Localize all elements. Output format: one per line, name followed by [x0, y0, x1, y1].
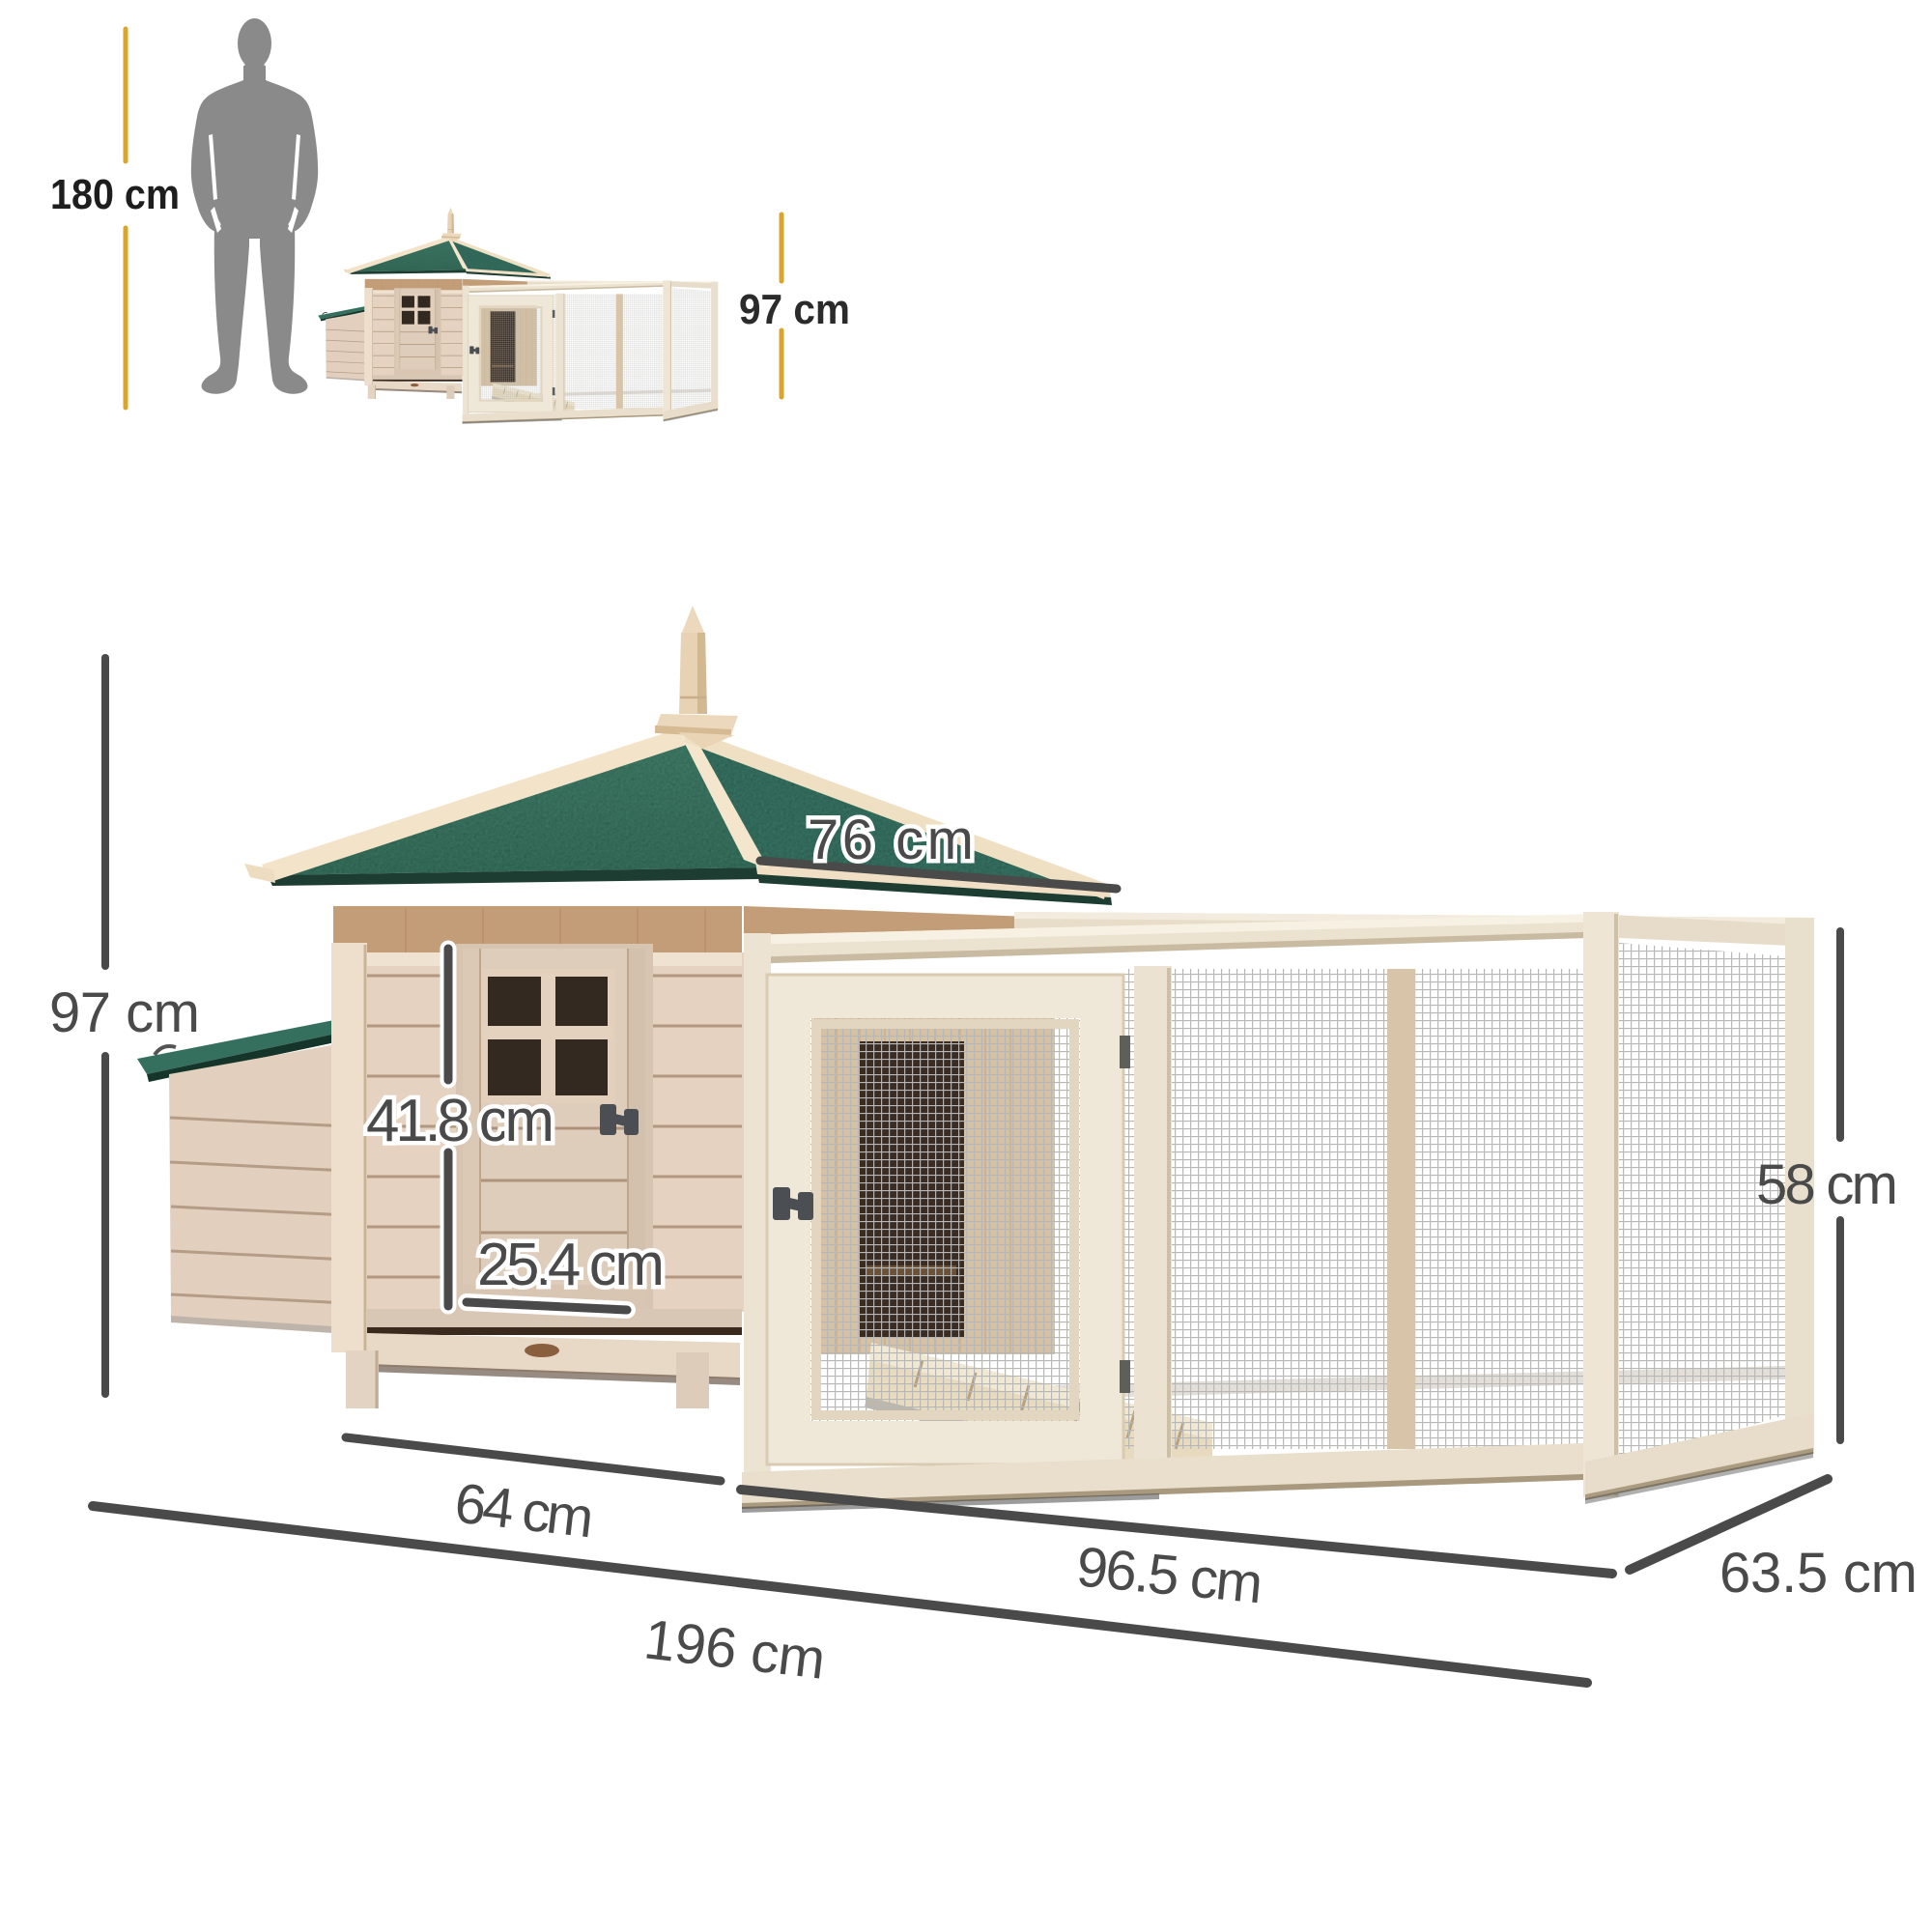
svg-text:58 cm: 58 cm: [1756, 1153, 1898, 1216]
svg-text:41.8 cm: 41.8 cm: [366, 1088, 554, 1154]
svg-text:76 cm: 76 cm: [808, 809, 974, 871]
svg-text:63.5 cm: 63.5 cm: [1719, 1542, 1918, 1605]
svg-text:25.4 cm: 25.4 cm: [477, 1232, 665, 1298]
svg-text:97 cm: 97 cm: [49, 981, 200, 1044]
svg-text:180 cm: 180 cm: [50, 171, 180, 218]
svg-text:97 cm: 97 cm: [739, 286, 850, 333]
